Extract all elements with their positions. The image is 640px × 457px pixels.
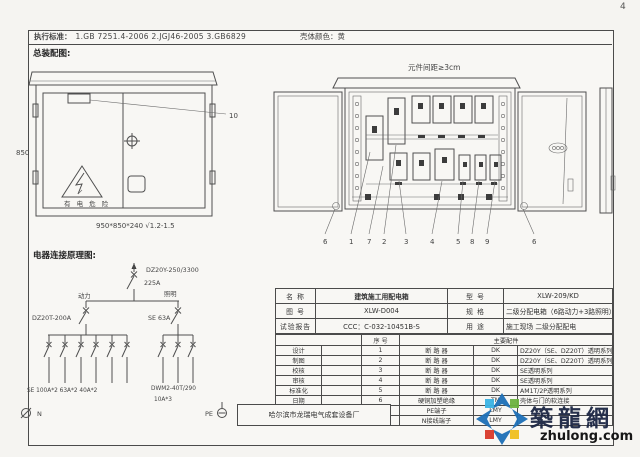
main-breaker-symbol xyxy=(127,263,137,301)
role-cell: 标准化 xyxy=(276,386,322,396)
warning-text: 有 电 危 险 xyxy=(64,199,110,208)
neutral-symbol-icon xyxy=(21,408,31,418)
lighting-outputs-rating: 10A*3 xyxy=(154,397,172,403)
power-output-breakers xyxy=(44,335,130,383)
assembly-drawing: 10 有 电 危 险 850 950*850*240 √1.2-1.5 xyxy=(12,56,264,244)
callout-number: 5 xyxy=(456,238,460,246)
open-door-left xyxy=(274,92,342,211)
table-row: 图 号 XLW-D004 规 格 二级分配电箱（6路动力+3路照明） xyxy=(276,304,613,319)
info-value: CCC：C-032-10451B-S xyxy=(316,319,448,334)
side-view-panel xyxy=(600,88,615,213)
callout-number: 1 xyxy=(349,238,353,246)
cabinet-doors xyxy=(43,93,205,208)
spacing-note: 元件间距≥3cm xyxy=(408,62,461,72)
mounting-rail-right xyxy=(499,96,507,201)
table-row: 名 称 建筑施工用配电箱 型 号 XLW-209/KD xyxy=(276,289,613,304)
role-cell: 校核 xyxy=(276,366,322,376)
info-key: 图 号 xyxy=(276,304,316,319)
part-code: DK xyxy=(474,346,518,356)
table-row: 制图 2 断 路 器 DK DZ20Y（SE、DZ20T）透明系列 xyxy=(276,356,613,366)
power-breaker-symbol xyxy=(79,301,89,335)
info-key: 规 格 xyxy=(448,304,504,319)
table-row: 校核 3 断 路 器 DK SE透明系列 xyxy=(276,366,613,376)
lighting-breaker-label: SE 63A xyxy=(148,315,171,322)
info-key: 试验报告 xyxy=(276,319,316,334)
callout-number: 6 xyxy=(532,238,537,246)
power-branch-label: 动力 xyxy=(78,291,91,300)
main-breaker-model: DZ20Y-250/3300 xyxy=(146,267,199,274)
part-desc: DZ20Y（SE、DZ20T）透明系列 xyxy=(518,356,613,366)
signature-cell xyxy=(322,356,362,366)
part-desc: SE透明系列 xyxy=(518,376,613,386)
cabinet-cap xyxy=(333,78,520,88)
callout-10: 10 xyxy=(229,112,238,120)
seq-cell: 3 xyxy=(362,366,400,376)
callout-number: 4 xyxy=(430,238,435,246)
door-bond-loop xyxy=(521,203,528,210)
info-value: 二级分配电箱（6路动力+3路照明） xyxy=(504,304,613,319)
internal-layout-drawing: 元件间距≥3cm xyxy=(262,56,616,252)
height-dimension: 850 xyxy=(16,149,29,157)
info-value: XLW-D004 xyxy=(316,304,448,319)
table-row: 试验报告 CCC：C-032-10451B-S 用 途 施工现场 二级分配配电 xyxy=(276,319,613,334)
parts-header: 主要配件 xyxy=(400,335,613,346)
table-row: 审核 4 断 路 器 DK SE透明系列 xyxy=(276,376,613,386)
part-code: DK xyxy=(474,356,518,366)
wiring-schematic: DZ20Y-250/3300 225A 动力 照明 DZ20T-200A SE … xyxy=(14,258,262,446)
part-name: 硬铜加塑绝缘 xyxy=(400,396,474,406)
part-name: 断 路 器 xyxy=(400,366,474,376)
shell-color-note: 壳体颜色：黄 xyxy=(300,30,345,44)
callout-number: 9 xyxy=(485,238,489,246)
role-cell: 制图 xyxy=(276,356,322,366)
info-key: 用 途 xyxy=(448,319,504,334)
role-cell: 审核 xyxy=(276,376,322,386)
part-name: N接线端子 xyxy=(400,416,474,426)
part-desc: SE透明系列 xyxy=(518,366,613,376)
seq-cell: 1 xyxy=(362,346,400,356)
zhulong-logo-icon xyxy=(474,391,530,447)
info-value: 建筑施工用配电箱 xyxy=(316,289,448,304)
signature-cell xyxy=(322,376,362,386)
part-name: 断 路 器 xyxy=(400,346,474,356)
part-code: DK xyxy=(474,376,518,386)
document-page: 4 执行标准：1.GB 7251.4-2006 2.JGJ46-2005 3.G… xyxy=(0,0,640,457)
signature-cell xyxy=(322,366,362,376)
role-cell: 设计 xyxy=(276,346,322,356)
watermark-name: 築龍網 xyxy=(530,399,614,433)
seq-cell: 5 xyxy=(362,386,400,396)
power-outputs-label: SE 100A*2 63A*2 40A*2 xyxy=(27,388,98,394)
door-bond-loop xyxy=(333,203,340,210)
electric-danger-icon xyxy=(62,166,102,197)
mounting-rail-left xyxy=(353,96,361,201)
info-key: 型 号 xyxy=(448,289,504,304)
lighting-breaker-symbol xyxy=(171,301,181,335)
seq-cell: 4 xyxy=(362,376,400,386)
seq-cell: 2 xyxy=(362,356,400,366)
standards-label: 执行标准： xyxy=(34,32,72,41)
breaker-components xyxy=(352,96,508,200)
callout-number: 2 xyxy=(382,238,386,246)
table-row: 序 号 主要配件 xyxy=(276,335,613,346)
earth-symbol-icon xyxy=(218,402,227,418)
lighting-branch-label: 照明 xyxy=(164,290,177,298)
lock-icon xyxy=(124,133,140,149)
part-name: 断 路 器 xyxy=(400,356,474,366)
blank-cell xyxy=(276,335,362,346)
part-code: DK xyxy=(474,366,518,376)
part-name: 断 路 器 xyxy=(400,376,474,386)
info-value: XLW-209/KD xyxy=(504,289,613,304)
neutral-label: N xyxy=(37,410,42,418)
nameplate xyxy=(68,94,90,103)
door-handle xyxy=(128,176,145,192)
signature-cell xyxy=(322,386,362,396)
page-number: 4 xyxy=(620,2,626,12)
company-name-box: 哈尔滨市龙瑞电气成套设备厂 xyxy=(237,404,391,426)
table-row: 设计 1 断 路 器 DK DZ20Y（SE、DZ20T）透明系列 xyxy=(276,346,613,356)
seq-header: 序 号 xyxy=(362,335,400,346)
watermark-domain: zhulong.com xyxy=(540,429,633,444)
part-name: 断 路 器 xyxy=(400,386,474,396)
size-dimension: 950*850*240 √1.2-1.5 xyxy=(96,222,175,230)
cabinet-cap xyxy=(29,72,217,85)
info-value: 施工现场 二级分配配电 xyxy=(504,319,613,334)
part-desc: DZ20Y（SE、DZ20T）透明系列 xyxy=(518,346,613,356)
info-table: 名 称 建筑施工用配电箱 型 号 XLW-209/KD 图 号 XLW-D004… xyxy=(275,288,613,334)
power-breaker-label: DZ20T-200A xyxy=(32,315,72,322)
callout-number: 7 xyxy=(367,238,371,246)
door-lock-handle xyxy=(549,143,567,153)
main-breaker-current: 225A xyxy=(144,280,161,287)
pe-label: PE xyxy=(205,410,213,418)
zhulong-watermark: 築龍網 zhulong.com xyxy=(474,391,634,451)
info-key: 名 称 xyxy=(276,289,316,304)
open-door-right xyxy=(518,92,586,211)
callout-number: 8 xyxy=(470,238,474,246)
signature-cell xyxy=(322,346,362,356)
lighting-outputs-model: DWM2-40T/290 xyxy=(151,386,196,392)
callout-number: 6 xyxy=(323,238,328,246)
standards-header: 执行标准：1.GB 7251.4-2006 2.JGJ46-2005 3.GB6… xyxy=(28,30,612,45)
part-name: PE端子 xyxy=(400,406,474,416)
standards-list: 1.GB 7251.4-2006 2.JGJ46-2005 3.GB6829 xyxy=(76,32,247,41)
lighting-output-breakers xyxy=(158,335,196,383)
callout-number: 3 xyxy=(404,238,408,246)
